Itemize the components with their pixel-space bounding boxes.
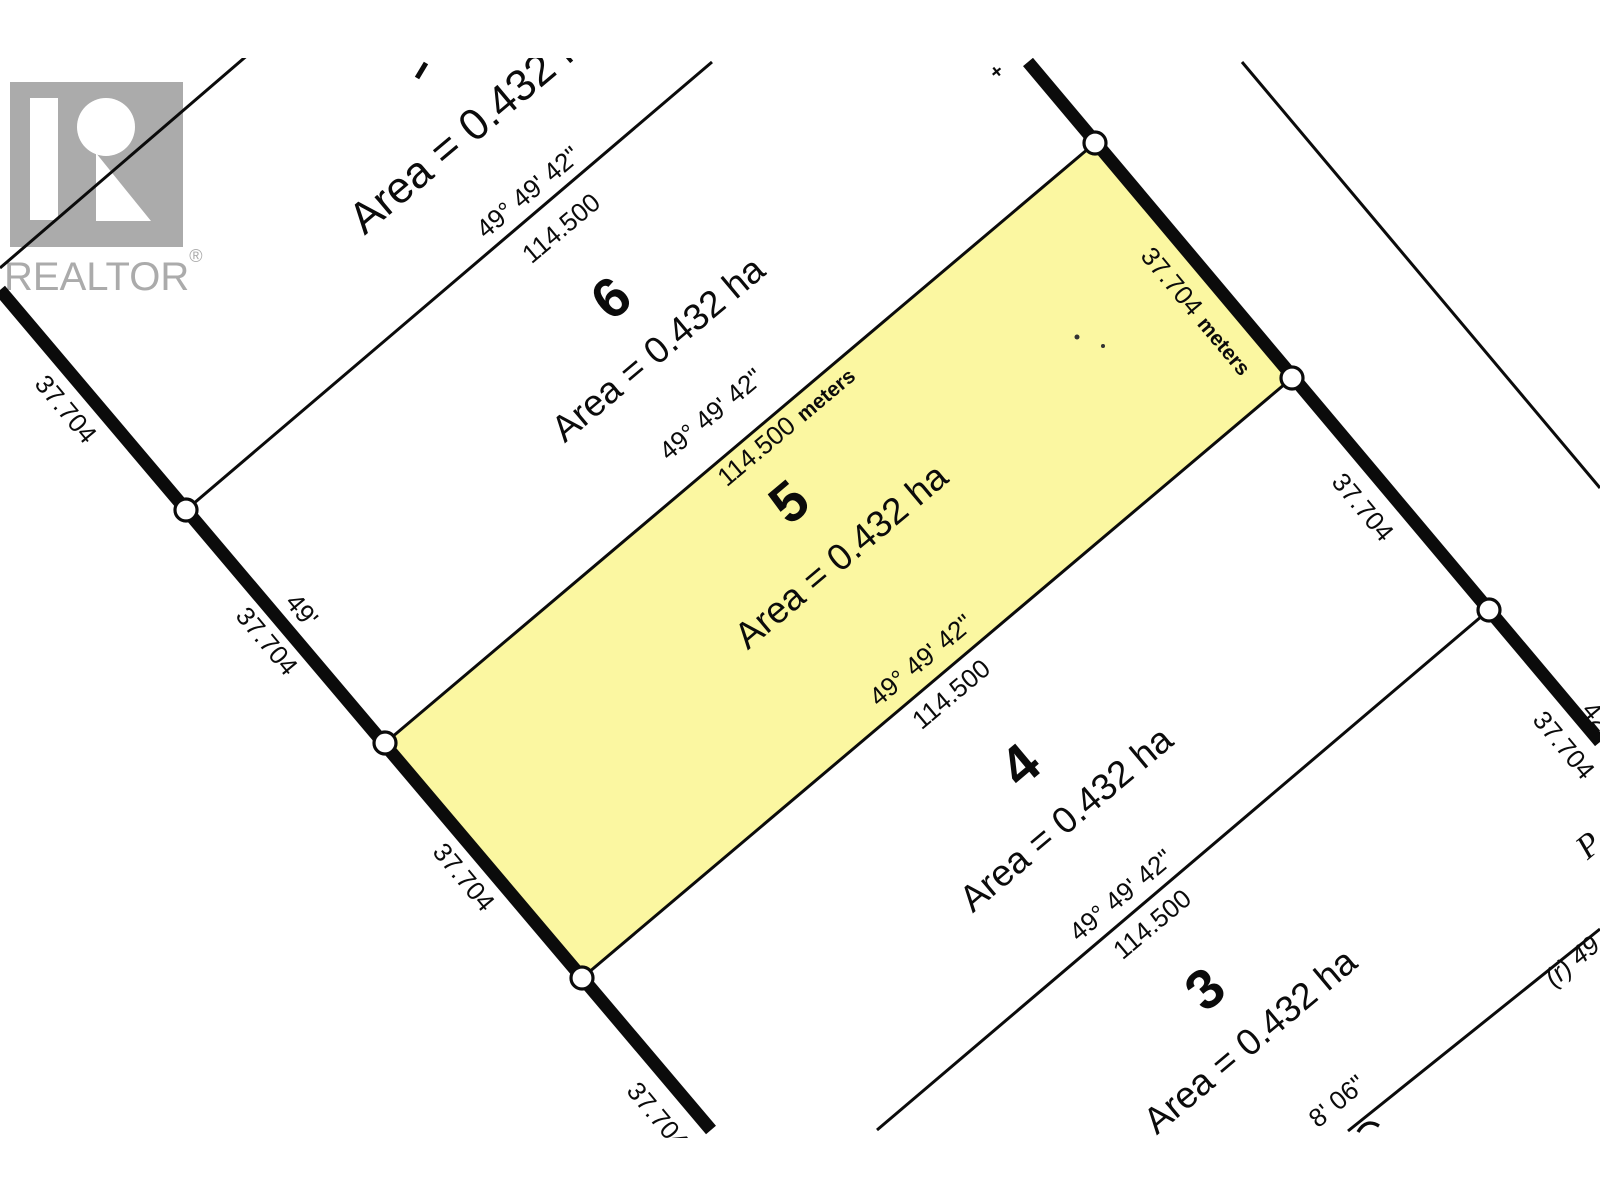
monument-west-3 [571, 967, 593, 989]
lot7-lot8-boundary [0, 53, 250, 268]
monument-east-3 [1478, 599, 1500, 621]
plat-map-screenshot: { "colors": {"highlight":"#fbf7a1","ink"… [0, 0, 1600, 1200]
monument-east-2 [1281, 367, 1303, 389]
scan-speck-2 [1101, 344, 1105, 348]
east-road-far-side-line [1242, 62, 1600, 488]
monument-west-2 [374, 732, 396, 754]
monument-west-1 [175, 499, 197, 521]
scan-speck-1 [1075, 335, 1080, 340]
plat-drawing: REALTOR® Area = 0.432 ha 49° 49' 42" 114… [0, 0, 1600, 1200]
clipped-text-tick [417, 63, 426, 78]
monument-east-1 [1084, 132, 1106, 154]
clipped-digit-fragment [1358, 1123, 1379, 1132]
